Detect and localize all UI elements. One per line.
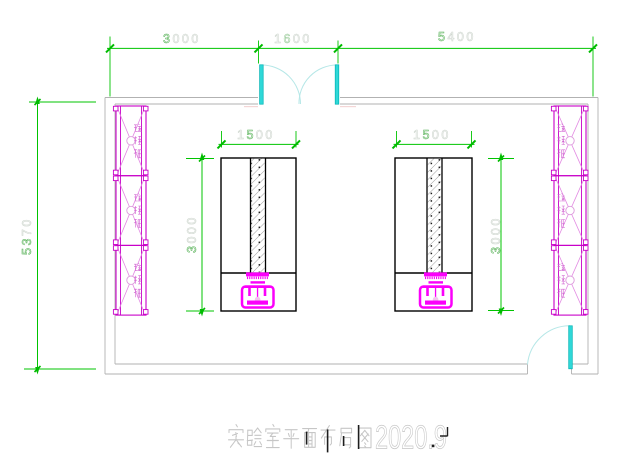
svg-text:2020.9: 2020.9 [375, 419, 447, 456]
svg-text:1500: 1500 [413, 128, 451, 142]
svg-text:5370: 5370 [20, 217, 34, 255]
svg-text:3000: 3000 [163, 32, 201, 46]
svg-text:3000: 3000 [489, 216, 503, 254]
svg-text:1500: 1500 [237, 128, 275, 142]
svg-text:3000: 3000 [185, 215, 199, 253]
svg-text:5400: 5400 [438, 30, 476, 44]
svg-text:1600: 1600 [274, 32, 312, 46]
